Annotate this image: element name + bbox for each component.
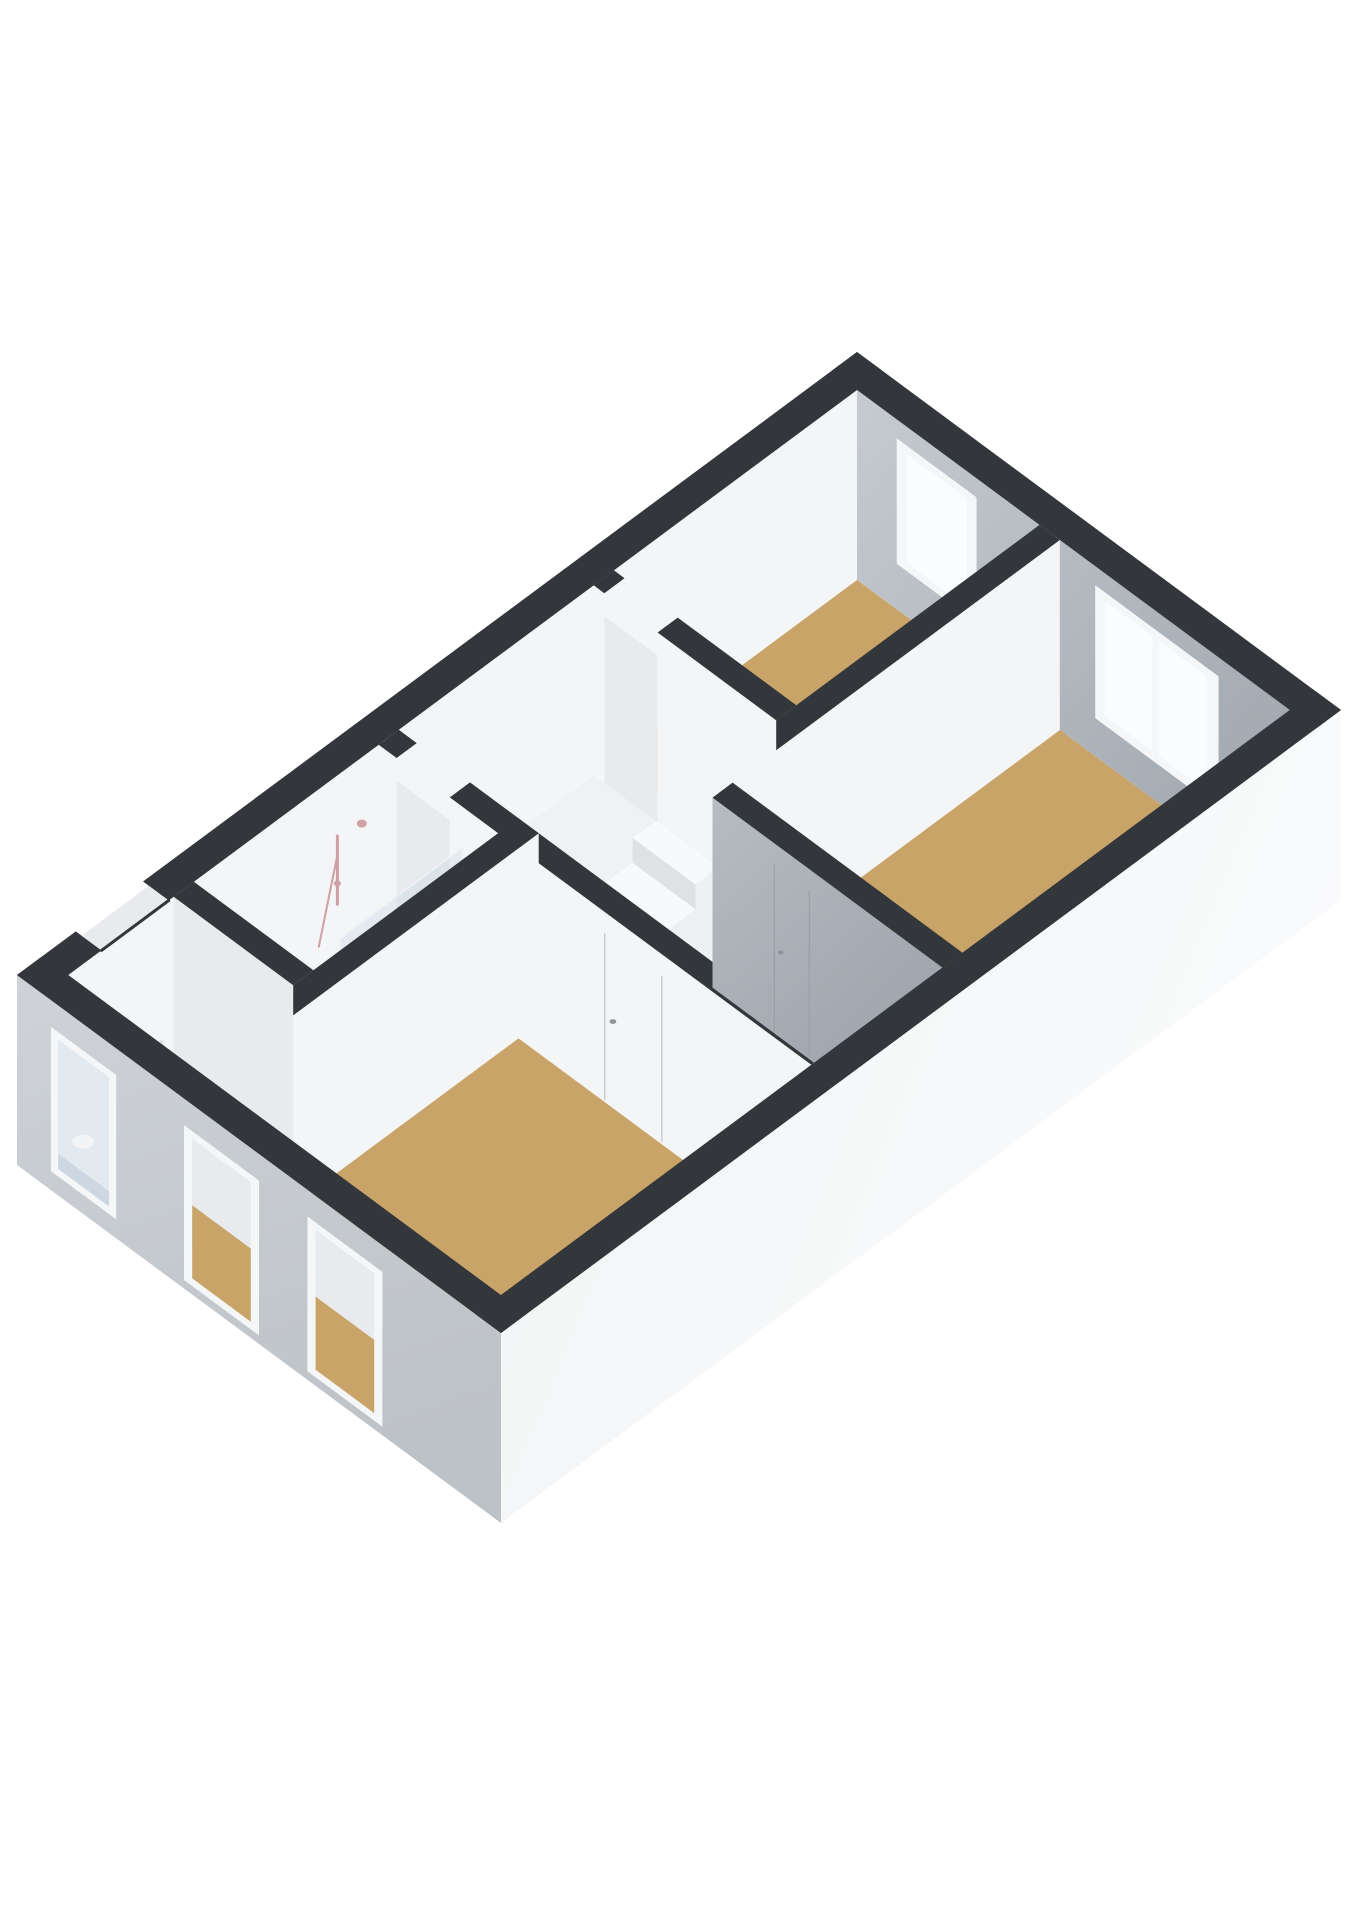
- page-canvas: [0, 0, 1358, 1920]
- shower-head: [357, 820, 367, 828]
- door-handle-bedroom-east: [778, 951, 784, 955]
- floor-plan-shapes: [17, 352, 1341, 1523]
- shower-mixer: [334, 881, 341, 887]
- toilet-through-window: [72, 1135, 94, 1149]
- floor-plan-3d-render: [0, 0, 1358, 1920]
- wall-face-landing-north: [594, 585, 605, 783]
- door-handle-bedroom-south: [610, 1019, 617, 1024]
